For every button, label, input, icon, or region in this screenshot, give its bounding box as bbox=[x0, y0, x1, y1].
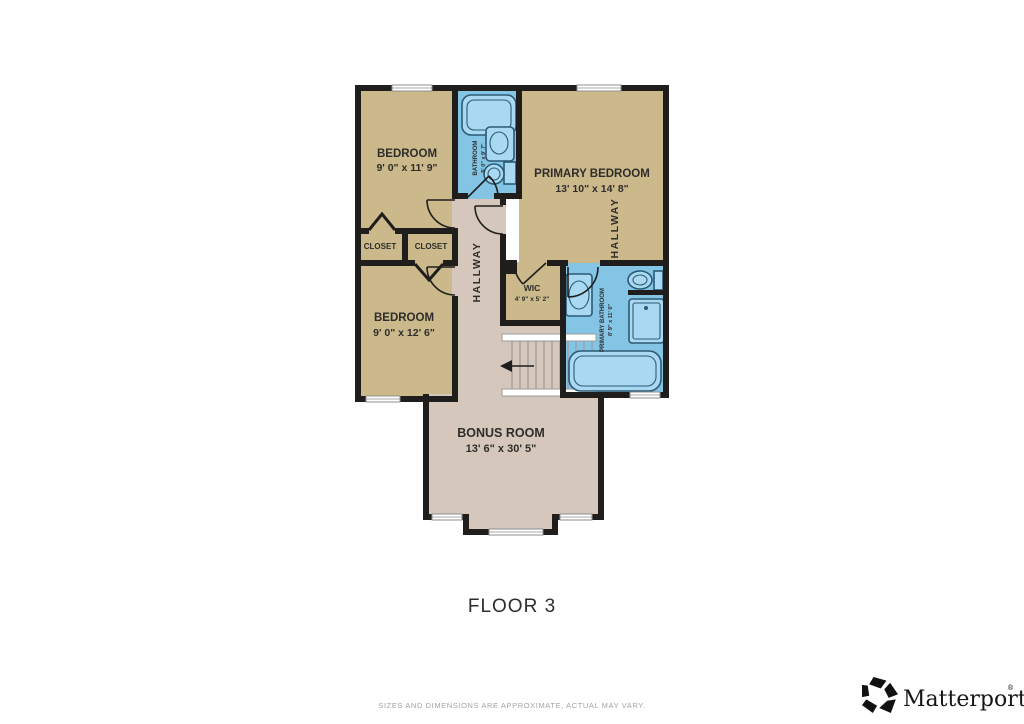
wic-dims: 4' 9" x 5' 2" bbox=[515, 296, 550, 303]
wall-segment bbox=[560, 266, 566, 398]
wall-segment bbox=[452, 91, 458, 199]
shower-symbol bbox=[629, 299, 664, 343]
matterport-wordmark: Matterport bbox=[903, 687, 1024, 712]
wall-segment bbox=[663, 85, 669, 398]
bonus-room-dims: 13' 6" x 30' 5" bbox=[466, 443, 537, 455]
toilet-bowl-symbol bbox=[628, 271, 652, 289]
wall-segment bbox=[452, 193, 468, 199]
bathroom-dims: 5' 0" x 9' 7" bbox=[481, 143, 487, 173]
wall-segment bbox=[600, 260, 669, 266]
wall-segment bbox=[500, 234, 506, 326]
wall-segment bbox=[547, 260, 568, 266]
wall-segment bbox=[628, 290, 669, 295]
matterport-logo-icon bbox=[862, 677, 898, 713]
bedroom-top-dims: 9' 0" x 11' 9" bbox=[376, 162, 437, 174]
wall-segment bbox=[423, 394, 429, 520]
toilet-tank-symbol bbox=[504, 162, 516, 184]
wall-segment bbox=[598, 394, 604, 520]
closet-right-label: CLOSET bbox=[415, 242, 448, 251]
trademark-symbol: ® bbox=[1007, 684, 1014, 692]
stair-rail-top bbox=[502, 334, 596, 341]
bedroom-top-label: BEDROOM bbox=[377, 148, 437, 160]
bedroom-bottom-label: BEDROOM bbox=[374, 312, 434, 324]
bathroom-label: BATHROOM bbox=[473, 141, 479, 176]
wall-segment bbox=[402, 228, 408, 266]
wall-segment bbox=[355, 228, 369, 234]
matterport-logo: Matterport ® bbox=[862, 677, 1024, 713]
primary-bedroom-label: PRIMARY BEDROOM bbox=[534, 168, 650, 180]
bedroom-bottom-dims: 9' 0" x 12' 6" bbox=[373, 327, 435, 339]
floor-plan-page: BEDROOM 9' 0" x 11' 9" BATHROOM 5' 0" x … bbox=[0, 0, 1024, 724]
wall-segment bbox=[516, 91, 522, 199]
floor-plan-canvas: BEDROOM 9' 0" x 11' 9" BATHROOM 5' 0" x … bbox=[0, 0, 1024, 724]
hallway-upper-label: HALLWAY bbox=[609, 198, 621, 259]
shower-drain-dot bbox=[644, 306, 648, 310]
wall-segment bbox=[500, 320, 566, 326]
bonus-room-label: BONUS ROOM bbox=[457, 426, 545, 440]
room-bedroom-top bbox=[358, 88, 458, 234]
primary-bathroom-label: PRIMARY BATHROOM bbox=[600, 288, 606, 352]
closet-left-label: CLOSET bbox=[364, 242, 397, 251]
toilet-tank-symbol bbox=[654, 271, 663, 290]
hallway-center-label: HALLWAY bbox=[471, 242, 483, 303]
wall-segment bbox=[500, 260, 514, 266]
wall-segment bbox=[452, 228, 458, 266]
primary-bedroom-dims: 13' 10" x 14' 8" bbox=[555, 183, 628, 195]
bathtub-symbol bbox=[569, 351, 661, 391]
wic-label: WIC bbox=[524, 283, 541, 293]
floor-title: FLOOR 3 bbox=[468, 596, 556, 617]
wall-segment bbox=[355, 85, 361, 402]
wall-segment bbox=[452, 296, 458, 402]
primary-bathroom-dims: 8' 9" x 11' 0" bbox=[608, 304, 614, 336]
room-bonus bbox=[426, 394, 601, 532]
wall-segment bbox=[500, 199, 506, 205]
disclaimer-text: SIZES AND DIMENSIONS ARE APPROXIMATE, AC… bbox=[378, 701, 645, 710]
